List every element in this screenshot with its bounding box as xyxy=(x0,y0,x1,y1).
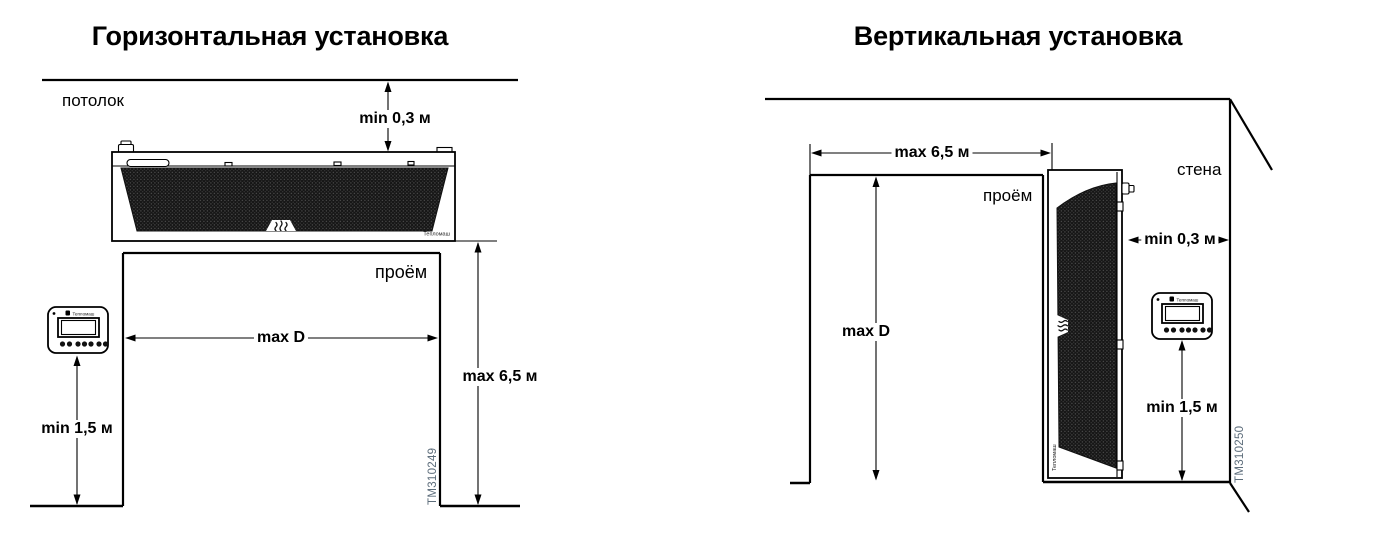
opening-label-left: проём xyxy=(375,262,427,283)
brand-label-controller-left: Тепломаш xyxy=(73,312,95,317)
diagram-linework: Тепломаш xyxy=(0,0,1380,537)
brand-label-unit-left: Тепломаш xyxy=(423,232,450,238)
dim-label-wall-gap: min 0,3 м xyxy=(1141,231,1218,249)
dim-label-opening-height-right: max D xyxy=(839,323,893,341)
left-ceiling-and-opening xyxy=(30,80,520,506)
dim-label-opening-width-left: max D xyxy=(254,329,308,347)
dim-label-ceiling-gap: min 0,3 м xyxy=(356,110,433,128)
drawing-id-right: ТМ310250 xyxy=(1234,426,1246,483)
controller-logo-icon xyxy=(66,311,71,316)
brand-label-unit-right: Тепломаш xyxy=(1052,444,1058,471)
dim-label-controller-height-right: min 1,5 м xyxy=(1143,399,1220,417)
ceiling-label: потолок xyxy=(62,91,124,111)
right-diagram-title: Вертикальная установка xyxy=(808,21,1228,52)
air-curtain-unit-horizontal: Тепломаш xyxy=(112,141,497,241)
left-diagram-title: Горизонтальная установка xyxy=(60,21,480,52)
air-curtain-unit-vertical: Тепломаш xyxy=(1048,170,1134,478)
wall-label: стена xyxy=(1177,160,1221,180)
controller-logo-icon xyxy=(1170,297,1175,302)
dim-label-opening-height-left: max 6,5 м xyxy=(460,368,541,386)
opening-label-right: проём xyxy=(983,186,1032,206)
installation-diagrams-page: Тепломаш xyxy=(0,0,1380,537)
dim-label-controller-height-left: min 1,5 м xyxy=(38,420,115,438)
remote-controller-right: Тепломаш xyxy=(1152,293,1212,339)
brand-label-controller-right: Тепломаш xyxy=(1177,298,1199,303)
drawing-id-left: ТМ310249 xyxy=(427,448,439,505)
remote-controller-left: Тепломаш xyxy=(48,307,108,353)
dim-label-opening-width-right: max 6,5 м xyxy=(892,144,973,162)
